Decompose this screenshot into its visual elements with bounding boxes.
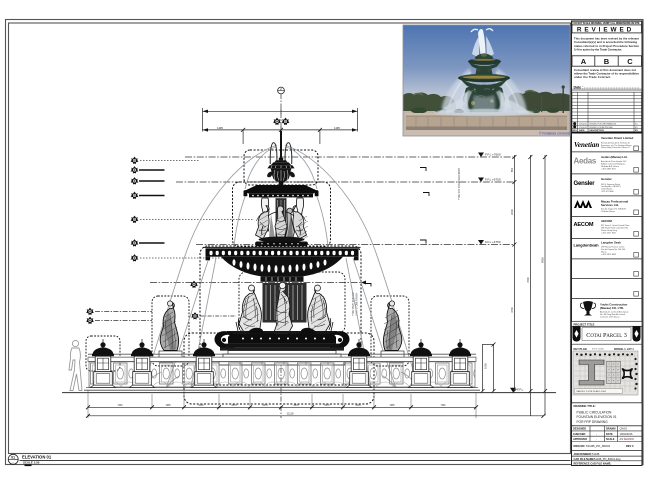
- svg-text:Gensler: Gensler: [574, 181, 596, 187]
- svg-text:© Fontaines Concorde: © Fontaines Concorde: [539, 132, 571, 136]
- svg-text:C: C: [627, 57, 633, 66]
- svg-text:CHECKED: CHECKED: [573, 433, 586, 436]
- svg-text:-: -: [596, 438, 597, 441]
- svg-text:2878: 2878: [231, 405, 237, 407]
- svg-text:12/04/16: 12/04/16: [579, 127, 588, 129]
- svg-text:B: B: [604, 57, 610, 66]
- svg-text:AECOM: AECOM: [574, 222, 594, 228]
- svg-text:N.T.S 1:2000: N.T.S 1:2000: [592, 348, 604, 350]
- svg-text:REV 0: REV 0: [626, 444, 634, 448]
- svg-text:(Macau) CO. LTD.: (Macau) CO. LTD.: [600, 306, 624, 310]
- svg-text:21118: 21118: [287, 411, 294, 415]
- svg-text:CAD FILE NAME:: CAD FILE NAME:: [574, 457, 595, 461]
- svg-text:under the Trade Contract.: under the Trade Contract.: [574, 75, 611, 79]
- svg-text:5110B_PD_80001.dwg: 5110B_PD_80001.dwg: [594, 457, 621, 461]
- svg-text:ELEVATION 01: ELEVATION 01: [22, 455, 52, 460]
- svg-text:APPROVED: APPROVED: [573, 438, 587, 441]
- svg-text:8450: 8450: [541, 257, 545, 263]
- svg-text:4750: 4750: [510, 307, 514, 313]
- svg-text:JOB NUMBER:: JOB NUMBER:: [574, 452, 592, 456]
- svg-text:A: A: [581, 57, 587, 66]
- svg-text:2878: 2878: [324, 405, 330, 407]
- svg-text:LangdonSeah: LangdonSeah: [574, 244, 600, 248]
- svg-text:2018: 2018: [198, 405, 204, 407]
- svg-text:Comercio 14-H, Macau: Comercio 14-H, Macau: [600, 315, 619, 318]
- svg-text:ISSUED FOR APPROVAL: ISSUED FOR APPROVAL: [590, 126, 614, 129]
- svg-text:F.F.L: F.F.L: [517, 387, 524, 391]
- svg-text:CHAO: CHAO: [620, 427, 628, 431]
- svg-text:--: --: [12, 461, 14, 464]
- svg-text:F.F.L +4750: F.F.L +4750: [485, 240, 501, 244]
- svg-text:AS SHOWN: AS SHOWN: [620, 437, 634, 441]
- svg-text:PARCEL 3 SITE PLAN 1:2000: PARCEL 3 SITE PLAN 1:2000: [577, 390, 607, 393]
- svg-text:Consultant review of this docu: Consultant review of this document does …: [574, 68, 636, 72]
- svg-text:1050: 1050: [484, 363, 488, 369]
- svg-text:t 213.327.3600: t 213.327.3600: [601, 190, 614, 193]
- svg-text:REFERENCE CAD FILE NAME:: REFERENCE CAD FILE NAME:: [574, 462, 612, 466]
- svg-text:DATE: DATE: [579, 129, 585, 132]
- svg-text:FOUNTAIN ELEVATION 01: FOUNTAIN ELEVATION 01: [577, 415, 617, 419]
- svg-text:PARCEL 1, LOT 1: PARCEL 1, LOT 1: [614, 348, 634, 351]
- svg-text:REVIEWED: REVIEWED: [577, 27, 634, 34]
- svg-text:ISSUED FOR INFORMATION: ISSUED FOR INFORMATION: [590, 123, 617, 126]
- svg-text:FOR FRP DRAWING: FOR FRP DRAWING: [577, 420, 609, 424]
- svg-text:status referred to in Proje: status referred to in Project Procedure …: [574, 44, 639, 48]
- svg-text:Venetian: Venetian: [574, 141, 599, 149]
- svg-text:7460: 7460: [440, 405, 446, 407]
- svg-text:SCALE: SCALE: [606, 438, 615, 441]
- svg-text:KEY PLAN: KEY PLAN: [574, 347, 587, 351]
- svg-text:-: -: [596, 433, 597, 436]
- svg-text:DWG NO:: DWG NO:: [574, 444, 586, 448]
- svg-text:DESIGNED: DESIGNED: [573, 428, 586, 431]
- svg-text:850: 850: [510, 167, 514, 172]
- svg-text:Aedas (Macau) Ltd.: Aedas (Macau) Ltd.: [601, 155, 628, 159]
- svg-text:12 Andar, Macau: 12 Andar, Macau: [601, 210, 615, 213]
- svg-text:AECOM: AECOM: [601, 219, 612, 223]
- svg-text:1495: 1495: [217, 126, 223, 130]
- svg-text:Aedas: Aedas: [574, 157, 597, 166]
- svg-text:DATE: DATE: [606, 433, 613, 436]
- svg-text:F.F.L +7600: F.F.L +7600: [485, 153, 501, 157]
- svg-text:1995: 1995: [389, 405, 395, 407]
- svg-text:5110B_PD_80001: 5110B_PD_80001: [586, 444, 611, 448]
- svg-text:Venetian Orient Limited: Venetian Orient Limited: [601, 136, 634, 140]
- svg-text:10/04/16: 10/04/16: [579, 124, 588, 126]
- svg-text:Services Ltd.: Services Ltd.: [601, 203, 619, 207]
- svg-text:Resort Hotel, Executive Office: Resort Hotel, Executive Offices-L2: [601, 146, 630, 149]
- svg-text:t +853 2833 3091: t +853 2833 3091: [601, 167, 616, 170]
- svg-text:DRAWING TITLE:: DRAWING TITLE:: [574, 404, 596, 408]
- svg-text:Consultant(s)(s) and is accord: Consultant(s)(s) and is accorded the fol…: [574, 40, 637, 44]
- svg-text:Gensler: Gensler: [601, 177, 613, 181]
- svg-text:7600: 7600: [526, 277, 530, 283]
- svg-text:F.F.L +6750: F.F.L +6750: [485, 178, 501, 182]
- svg-text:01: 01: [11, 455, 15, 459]
- svg-text:10/04/2016: 10/04/2016: [620, 432, 634, 436]
- svg-text:SCALE 1:50: SCALE 1:50: [23, 461, 40, 465]
- svg-text:DRAWN: DRAWN: [606, 428, 616, 431]
- svg-text:COTAI PARCEL 3: COTAI PARCEL 3: [586, 332, 627, 339]
- svg-text:2878: 2878: [262, 405, 268, 407]
- svg-text:2018: 2018: [355, 405, 361, 407]
- svg-text:1495: 1495: [334, 126, 340, 130]
- svg-text:TYPE 'F03' FOUNTAIN FINISH: TYPE 'F03' FOUNTAIN FINISH: [458, 168, 461, 200]
- svg-text:5.4 for action by the Trade Co: 5.4 for action by the Trade Contractor.: [574, 48, 622, 52]
- svg-text:2878: 2878: [293, 405, 299, 407]
- svg-text:t +852 2317 7600: t +852 2317 7600: [601, 231, 616, 234]
- svg-text:PROJECT TITLE: PROJECT TITLE: [574, 322, 595, 326]
- svg-text:relieve the Trade Contractor o: relieve the Trade Contractor of its resp…: [574, 72, 640, 76]
- svg-text:1995: 1995: [165, 405, 171, 407]
- svg-text:7460: 7460: [117, 405, 123, 407]
- svg-text:5110B: 5110B: [592, 452, 600, 456]
- svg-text:PUBLIC CIRCULATION: PUBLIC CIRCULATION: [577, 411, 613, 415]
- svg-text:This document has been revised: This document has been revised by the re…: [574, 37, 639, 41]
- svg-text:t +853 2875 3088: t +853 2875 3088: [601, 253, 616, 256]
- svg-text:Langdon Seah: Langdon Seah: [601, 241, 621, 245]
- svg-text:2000: 2000: [510, 209, 514, 215]
